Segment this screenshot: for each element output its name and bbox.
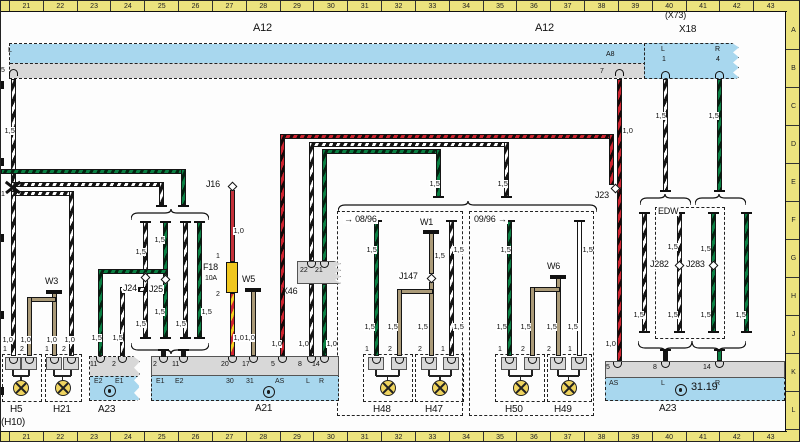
lamp-icon	[13, 380, 29, 396]
j23-label: J23	[595, 191, 609, 200]
ruler-top-number: 21	[9, 1, 43, 11]
gauge-g15-label: 1,5	[434, 252, 445, 260]
a12-pin_a8-label: A8	[606, 51, 615, 58]
left-edge-tick	[1, 387, 4, 395]
terminal-connector	[715, 71, 724, 78]
terminal-connector	[9, 358, 18, 364]
ruler-top-number: 25	[144, 1, 178, 11]
wire-segment	[197, 222, 202, 338]
wire-segment	[504, 142, 509, 197]
left-edge-tick	[1, 81, 4, 89]
h50-label: H50	[505, 405, 523, 415]
connector-end	[714, 349, 725, 352]
connector-end	[660, 190, 671, 193]
connector-end	[180, 221, 191, 224]
h5-pin2-label: 2	[20, 346, 24, 353]
wire-segment	[230, 293, 235, 356]
x73-label: (X73)	[665, 11, 686, 20]
ruler-right-letter: J	[786, 316, 800, 354]
a12-pin_7-label: 7	[600, 68, 604, 75]
x18-pin_1-label: 1	[662, 56, 666, 63]
brace	[692, 340, 746, 353]
ruler-right-letter: G	[786, 240, 800, 278]
a12-label-2: A12	[535, 23, 554, 34]
a21-t31-label: 31	[246, 378, 254, 385]
gauge-g10-label: 1,0	[233, 334, 244, 342]
x18-pin_l-label: L	[661, 46, 665, 53]
lamp-icon	[380, 380, 396, 396]
terminal-connector	[395, 358, 404, 364]
terminal-connector	[613, 362, 622, 368]
w3-label: W3	[45, 277, 58, 286]
gauge-g15-label: 1,5	[4, 127, 15, 135]
ground-bar-icon	[423, 230, 439, 234]
gauge-g10-label: 1,0	[622, 127, 633, 135]
wire-segment	[717, 79, 722, 192]
wire-segment	[11, 182, 163, 187]
wire-segment	[309, 142, 314, 261]
a21-p11-label: 11	[172, 361, 179, 368]
h50-pin2-label: 2	[521, 346, 525, 353]
edw-label: EDW	[657, 207, 679, 216]
a23-right-label: A23	[659, 404, 676, 414]
connector-x18-box	[644, 43, 739, 79]
connector-end	[741, 331, 752, 334]
diagram-splice_1-label: 1	[1, 191, 5, 198]
gauge-g15-label: 1,5	[633, 311, 644, 319]
gauge-g15-label: 1,5	[429, 180, 440, 188]
terminal-connector	[575, 358, 584, 364]
lamp-icon	[432, 380, 448, 396]
connector-end	[660, 349, 671, 352]
ruler-top-number: 30	[313, 1, 347, 11]
connector-end	[160, 337, 171, 340]
wire-segment	[507, 221, 512, 356]
h21-pin1-label: 1	[45, 346, 49, 353]
wire-segment	[309, 142, 508, 147]
a21-r-label: R	[319, 378, 324, 385]
ruler-bottom-number: 43	[753, 432, 787, 442]
gauge-g15-label: 1,5	[175, 320, 186, 328]
unit-a23-right-terminal-strip	[605, 361, 785, 378]
gauge-g15-label: 1,5	[655, 112, 666, 120]
ref-31-19-label: 31.19	[691, 382, 718, 393]
j24-label: J24	[122, 284, 138, 293]
brace	[638, 340, 692, 353]
connector-end	[639, 212, 650, 215]
connector-end	[708, 331, 719, 334]
ruler-top-number: 40	[652, 1, 686, 11]
ruler-bottom-number: 28	[246, 432, 280, 442]
terminal-connector	[372, 358, 381, 364]
gauge-g10-label: 1,0	[605, 340, 616, 348]
a23l-e1-label: E1	[115, 378, 124, 385]
ruler-top-number: 42	[719, 1, 753, 11]
ruler-top-number: 32	[381, 1, 415, 11]
wire-segment	[27, 297, 32, 356]
ruler-bottom-number: 29	[280, 432, 314, 442]
a23r-as-label: AS	[609, 380, 618, 387]
ruler-top: 2122232425262728293031323334353637383940…	[1, 1, 787, 12]
brace	[131, 342, 209, 355]
wire-segment	[280, 134, 613, 139]
gauge-g10-label: 1,0	[326, 340, 337, 348]
connector-end	[140, 221, 151, 224]
x18-pin_r-label: R	[715, 46, 720, 53]
ruler-top-number: 37	[550, 1, 584, 11]
terminal-connector	[425, 358, 434, 364]
wire-segment	[159, 182, 164, 205]
connector-end	[708, 212, 719, 215]
ruler-bottom-number: 22	[43, 432, 77, 442]
a21-p20-label: 20	[221, 361, 229, 368]
ruler-right-letter: E	[786, 164, 800, 202]
ruler-bottom-number: 34	[449, 432, 483, 442]
connector-end	[194, 221, 205, 224]
connector-end	[446, 220, 457, 223]
wire-segment	[436, 149, 441, 197]
a21-t30-label: 30	[226, 378, 234, 385]
terminal-connector	[320, 357, 329, 363]
ruler-bottom-number: 41	[686, 432, 720, 442]
connector-end	[639, 331, 650, 334]
h5-pin1-label: 1	[3, 346, 7, 353]
h48-pin1-label: 1	[365, 346, 369, 353]
gauge-g15-label: 1,5	[582, 246, 593, 254]
gauge-g10-label: 1,0	[298, 340, 309, 348]
j25-label: J25	[148, 285, 164, 294]
terminal-connector	[159, 357, 168, 363]
version-from-label: 09/96 →	[473, 215, 508, 224]
gauge-g15-label: 1,5	[453, 246, 464, 254]
gauge-g15-label: 1,5	[154, 308, 165, 316]
ruler-right-letter: K	[786, 354, 800, 392]
ruler-bottom-number: 31	[347, 432, 381, 442]
gauge-g15-label: 1,5	[91, 334, 102, 342]
a21-as-label: AS	[275, 378, 284, 385]
ruler-bottom: 2122232425262728293031323334353637383940…	[1, 431, 787, 442]
gauge-g15-label: 1,5	[667, 311, 678, 319]
wire-segment	[322, 149, 327, 261]
ruler-bottom-number: 21	[9, 432, 43, 442]
wire-segment	[120, 287, 125, 356]
ruler-top-number: 43	[753, 1, 787, 11]
terminal-connector	[50, 358, 59, 364]
ruler-right-letter: C	[786, 88, 800, 126]
siren-icon	[675, 384, 687, 396]
brace	[695, 194, 746, 207]
ruler-top-number: 31	[347, 1, 381, 11]
wire-segment	[663, 79, 668, 192]
f18-label: F18	[203, 263, 218, 272]
gauge-g15-label: 1,5	[500, 246, 511, 254]
siren-icon	[104, 385, 116, 397]
a21-l-label: L	[306, 378, 310, 385]
wire-segment	[98, 269, 103, 356]
j16-label: J16	[206, 180, 220, 189]
h47-pin2-label: 2	[418, 346, 422, 353]
a21-p17-label: 17	[242, 361, 250, 368]
j147-label: J147	[398, 272, 419, 281]
a23r-l-label: L	[661, 380, 665, 387]
ground-bar-icon	[245, 288, 261, 292]
ruler-bottom-number: 33	[415, 432, 449, 442]
terminal-connector	[278, 357, 287, 363]
connector-end	[178, 349, 189, 352]
gauge-g15-label: 1,5	[567, 323, 578, 331]
ground-bar-icon	[550, 275, 566, 279]
connector-end	[156, 205, 167, 208]
lamp-icon	[561, 380, 577, 396]
wire-segment	[251, 290, 256, 356]
h48-label: H48	[373, 405, 391, 415]
terminal-connector	[661, 362, 670, 368]
gauge-g15-label: 1,5	[735, 311, 746, 319]
lamp-icon	[55, 380, 71, 396]
a21-p8-label: 8	[298, 361, 302, 368]
terminal-connector	[715, 362, 724, 368]
h21-pin2-label: 2	[62, 346, 66, 353]
fuse-pin1-label: 1	[216, 253, 220, 260]
connector-end	[741, 212, 752, 215]
gauge-g15-label: 1,5	[366, 246, 377, 254]
terminal-connector	[447, 358, 456, 364]
x46-label: X46	[282, 287, 297, 296]
ruler-top-number: 38	[584, 1, 618, 11]
ruler-bottom-number: 37	[550, 432, 584, 442]
ruler-top-number: 39	[618, 1, 652, 11]
gauge-g15-label: 1,5	[520, 323, 531, 331]
a23r-p5-label: 5	[606, 364, 610, 371]
a21-e1-label: E1	[156, 378, 165, 385]
connector-end	[714, 190, 725, 193]
gauge-g10-label: 1,0	[46, 336, 57, 344]
connector-end	[433, 196, 444, 199]
ruler-top-number: 27	[212, 1, 246, 11]
terminal-connector	[554, 358, 563, 364]
gauge-g15-label: 1,5	[154, 236, 165, 244]
wire-segment	[69, 191, 74, 356]
ruler-top-number: 33	[415, 1, 449, 11]
ruler-right-letter: B	[786, 50, 800, 88]
ruler-bottom-number: 42	[719, 432, 753, 442]
f18-rating-label: 10A	[205, 275, 217, 282]
ruler-right-letter: A	[786, 12, 800, 50]
left-edge-tick	[1, 158, 4, 166]
ruler-right-letter: D	[786, 126, 800, 164]
wire-segment	[609, 134, 614, 185]
ruler-right: ABCDEFGHJKL	[785, 1, 800, 442]
a12-pin_5-label: 5	[1, 67, 5, 74]
a23l-pin11-label: 11	[90, 361, 97, 368]
a12-blue-area	[10, 44, 681, 63]
gauge-g15-label: 1,5	[417, 323, 428, 331]
a21-label: A21	[255, 404, 272, 414]
terminal-connector	[661, 71, 670, 78]
wiring-diagram-page: 2122232425262728293031323334353637383940…	[0, 0, 800, 442]
h50-pin1-label: 1	[498, 346, 502, 353]
terminal-connector	[9, 69, 18, 76]
gauge-g15-label: 1,5	[387, 323, 398, 331]
ruler-right-letter: L	[786, 392, 800, 430]
left-edge-tick	[1, 234, 4, 242]
h48-pin2-label: 2	[388, 346, 392, 353]
h21-label: H21	[53, 405, 71, 415]
connector-end	[180, 337, 191, 340]
h49-pin1-label: 1	[568, 346, 572, 353]
ruler-bottom-number: 27	[212, 432, 246, 442]
a12-label: A12	[253, 23, 272, 34]
a21-e2-label: E2	[175, 378, 184, 385]
j283-label: J283	[685, 260, 706, 269]
ruler-top-number: 36	[516, 1, 550, 11]
gauge-g10-label: 1,0	[271, 340, 282, 348]
j282-label: J282	[649, 260, 670, 269]
ground-bar-icon	[46, 290, 62, 294]
a23-left-label: A23	[98, 405, 115, 415]
terminal-connector	[25, 358, 34, 364]
wire-segment	[617, 79, 622, 361]
gauge-g15-label: 1,5	[708, 112, 719, 120]
gauge-g15-label: 1,5	[700, 311, 711, 319]
gauge-g15-label: 1,5	[667, 243, 678, 251]
ruler-top-number: 41	[686, 1, 720, 11]
a21-p5-label: 5	[271, 361, 275, 368]
gauge-g15-label: 1,5	[364, 323, 375, 331]
ruler-top-number: 22	[43, 1, 77, 11]
lamp-icon	[513, 380, 529, 396]
wire-segment	[98, 269, 167, 274]
ruler-bottom-number: 26	[178, 432, 212, 442]
ruler-right-letter: H	[786, 278, 800, 316]
h49-label: H49	[554, 405, 572, 415]
gauge-g15-label: 1,5	[546, 323, 557, 331]
gauge-g10-label: 1,0	[20, 336, 31, 344]
a12-gray-area	[10, 63, 681, 78]
h47-label: H47	[425, 405, 443, 415]
ruler-top-number: 34	[449, 1, 483, 11]
gauge-g15-label: 1,5	[135, 248, 146, 256]
unit-a12-band	[9, 43, 682, 79]
x46-pin_22-label: 22	[300, 267, 308, 274]
a23l-pin2-label: 2	[112, 361, 116, 368]
wire-segment	[397, 289, 433, 294]
terminal-connector	[179, 357, 188, 363]
wire-segment	[52, 292, 57, 356]
ruler-bottom-number: 38	[584, 432, 618, 442]
connector-end	[574, 220, 585, 223]
a23r-p14-label: 14	[703, 364, 711, 371]
gauge-g10-label: 1,0	[244, 334, 255, 342]
siren-icon	[263, 386, 275, 398]
wire-segment	[280, 134, 285, 356]
ruler-bottom-number: 24	[110, 432, 144, 442]
gauge-g15-label: 1,5	[112, 334, 123, 342]
ruler-bottom-number: 32	[381, 432, 415, 442]
connector-end	[140, 337, 151, 340]
gauge-g10-label: 1,0	[2, 336, 13, 344]
h10-label: (H10)	[1, 418, 25, 428]
ruler-right-letter: F	[786, 202, 800, 240]
ruler-top-number: 26	[178, 1, 212, 11]
wire-segment	[1, 169, 185, 174]
gauge-g15-label: 1,5	[201, 308, 212, 316]
terminal-connector	[67, 358, 76, 364]
connector-end	[160, 221, 171, 224]
wire-segment	[449, 221, 454, 356]
ruler-bottom-number: 40	[652, 432, 686, 442]
connector-end	[501, 196, 512, 199]
ruler-top-number: 29	[280, 1, 314, 11]
gauge-g10-label: 1,0	[233, 227, 244, 235]
x46-pin_21-label: 21	[315, 267, 323, 274]
w5-label: W5	[242, 275, 255, 284]
ruler-top-number: 35	[483, 1, 517, 11]
terminal-connector	[118, 357, 127, 363]
a23l-e2-label: E2	[94, 378, 103, 385]
terminal-connector	[505, 358, 514, 364]
ruler-bottom-number: 35	[483, 432, 517, 442]
wire-segment	[577, 221, 582, 356]
ruler-top-number: 23	[77, 1, 111, 11]
a12-pin_l-label: L	[8, 47, 12, 54]
terminal-connector	[528, 358, 537, 364]
fuse-f18-body	[226, 262, 238, 293]
connector-end	[158, 349, 169, 352]
gauge-g10-label: 1,0	[64, 336, 75, 344]
connector-end	[674, 331, 685, 334]
ruler-bottom-number: 25	[144, 432, 178, 442]
gauge-g15-label: 1,5	[497, 180, 508, 188]
connector-end	[178, 205, 189, 208]
terminal-connector	[615, 69, 624, 76]
wire-segment	[374, 221, 379, 356]
ruler-bottom-number: 39	[618, 432, 652, 442]
gauge-g15-label: 1,5	[496, 323, 507, 331]
a23r-p8-label: 8	[653, 364, 657, 371]
h5-label: H5	[10, 405, 22, 415]
ruler-top-number: 28	[246, 1, 280, 11]
connector-end	[194, 337, 205, 340]
ruler-top-number: 24	[110, 1, 144, 11]
left-edge-tick	[1, 311, 4, 319]
gauge-g15-label: 1,5	[700, 245, 711, 253]
ruler-bottom-number: 30	[313, 432, 347, 442]
h49-pin2-label: 2	[547, 346, 551, 353]
w6-label: W6	[547, 262, 560, 271]
x18-pin_4-label: 4	[716, 56, 720, 63]
wire-segment	[429, 232, 434, 274]
brace	[338, 201, 597, 214]
version-until-label: → 08/96	[343, 215, 378, 224]
gauge-g15-label: 1,5	[453, 323, 464, 331]
wire-segment	[530, 287, 560, 292]
w1-label: W1	[420, 218, 433, 227]
wire-segment	[11, 79, 16, 356]
ruler-bottom-number: 36	[516, 432, 550, 442]
ruler-bottom-number: 23	[77, 432, 111, 442]
a21-p2-label: 2	[153, 361, 157, 368]
h47-pin1-label: 1	[441, 346, 445, 353]
gauge-g15-label: 1,5	[135, 320, 146, 328]
wire-segment	[322, 149, 440, 154]
fuse-pin2-label: 2	[216, 291, 220, 298]
wire-segment	[181, 169, 186, 205]
a21-p14-label: 14	[312, 361, 320, 368]
x18-label: X18	[679, 25, 696, 35]
